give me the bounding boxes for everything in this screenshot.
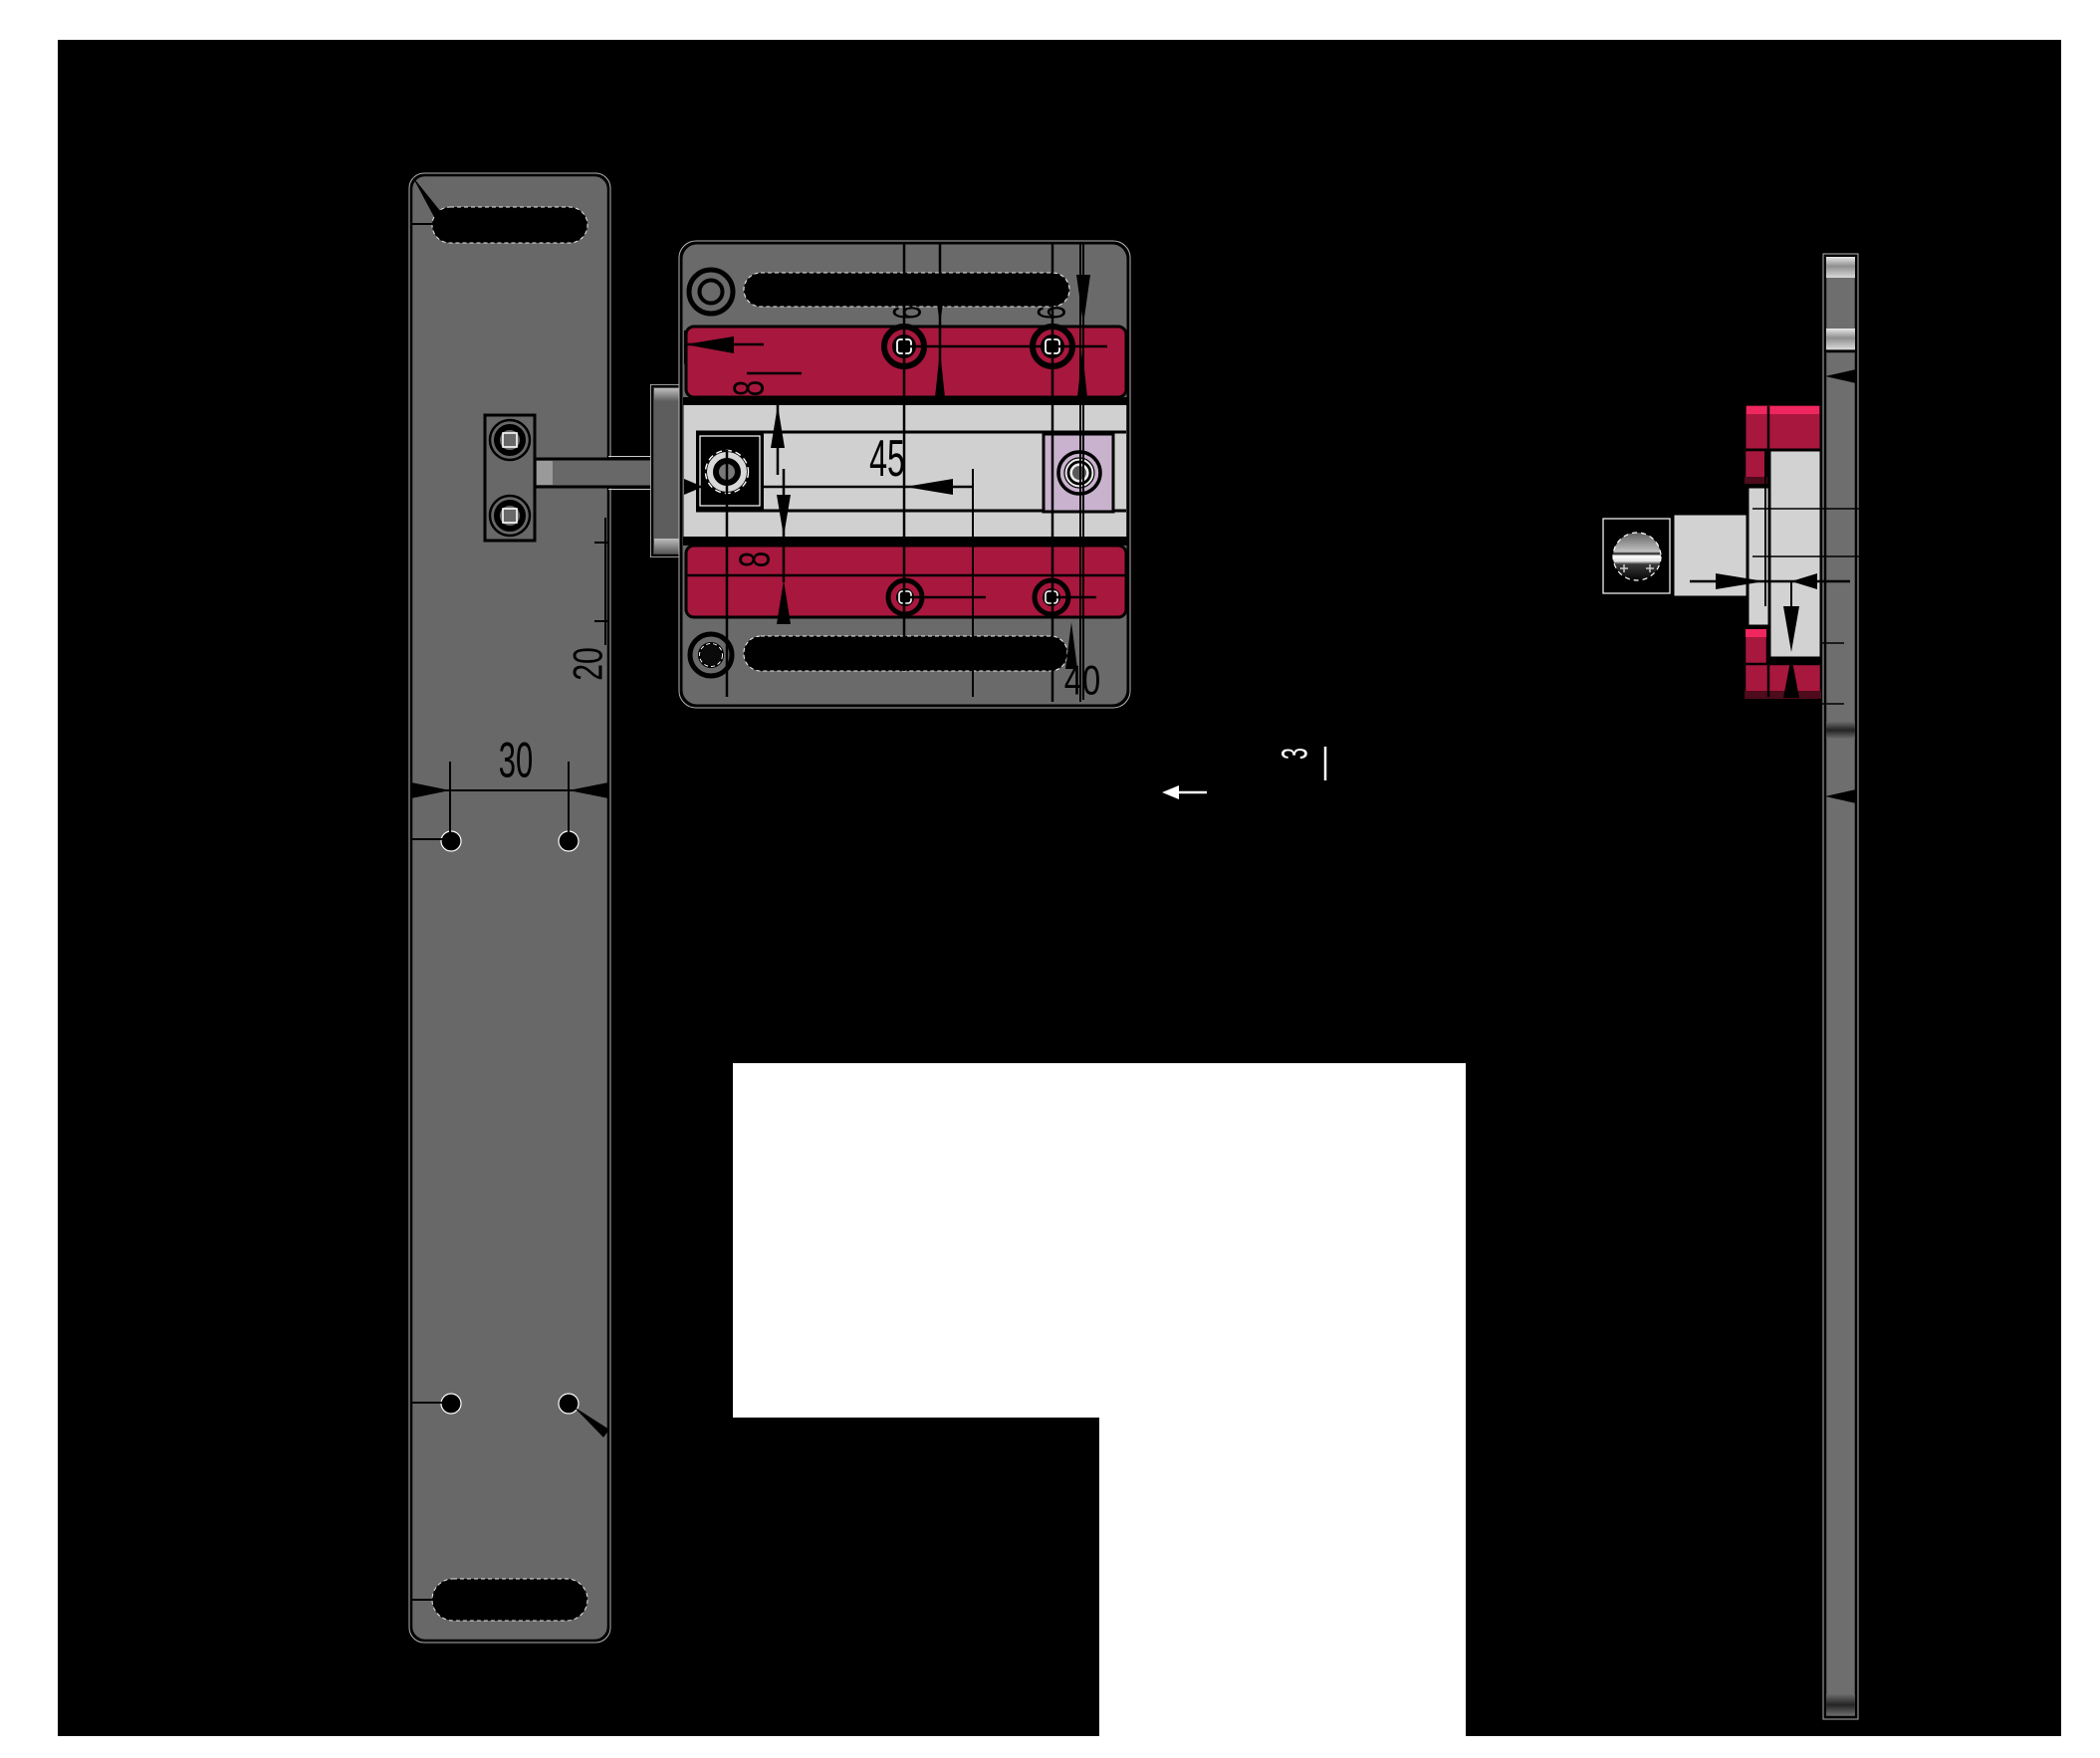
svg-text:3: 3 [1276,748,1315,760]
svg-text:6: 6 [1031,306,1074,320]
svg-text:8: 8 [729,551,778,567]
svg-text:45: 45 [869,430,905,488]
svg-text:40: 40 [1064,657,1100,704]
svg-text:20: 20 [564,647,610,681]
svg-text:6: 6 [886,306,930,320]
svg-text:30: 30 [499,732,533,787]
svg-text:8: 8 [723,380,772,396]
